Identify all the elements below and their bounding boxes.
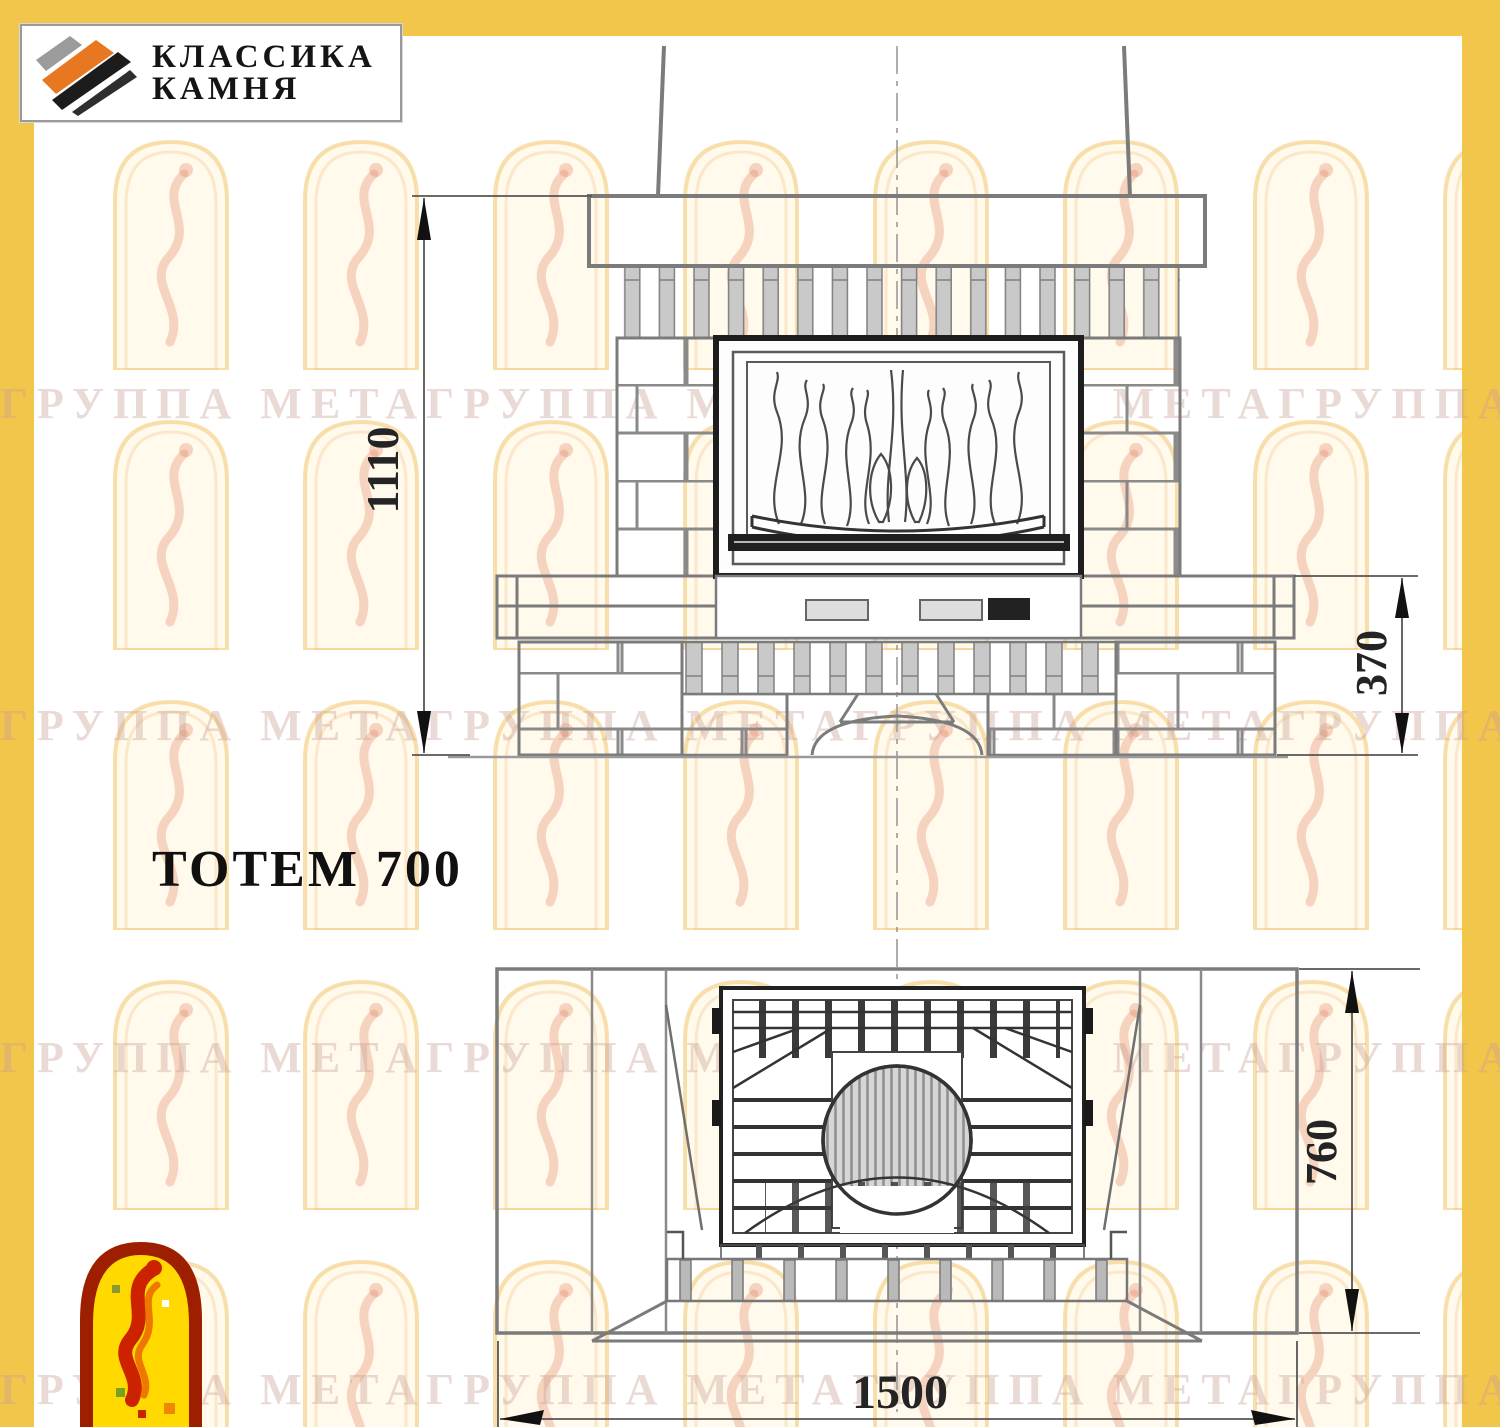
firebox-insert: [716, 338, 1081, 576]
base-dentil-course: [682, 642, 1116, 694]
dim-760: 760: [1297, 969, 1420, 1333]
base: [448, 642, 1288, 757]
arch-emblem: [78, 1238, 204, 1427]
chimney-lines: [658, 46, 1130, 196]
logo-text-line2: КАМНЯ: [152, 73, 376, 105]
dim-label-1500: 1500: [852, 1366, 948, 1419]
model-title: ТОТЕМ 700: [152, 840, 463, 899]
dim-label-370: 370: [1347, 630, 1396, 696]
firebox-pedestal: [716, 576, 1081, 638]
plan-firebox-insert: [712, 988, 1093, 1245]
logo-text-line1: КЛАССИКА: [152, 41, 376, 73]
company-logo: КЛАССИКА КАМНЯ: [20, 24, 402, 122]
dentil-course: [589, 267, 1205, 339]
plan-view: 760 1500: [497, 969, 1420, 1427]
dim-label-1110: 1110: [357, 427, 408, 514]
page: ГРУППА МЕТАГРУППА МЕТАГРУППА МЕТАГРУППА …: [0, 0, 1500, 1427]
wood-niche-arch: [787, 694, 988, 755]
dim-label-760: 760: [1297, 1119, 1346, 1185]
fireplace-technical-drawing: 1110 370: [0, 0, 1500, 1427]
dim-370: 370: [1277, 576, 1418, 755]
logo-stripes-icon: [30, 30, 148, 116]
